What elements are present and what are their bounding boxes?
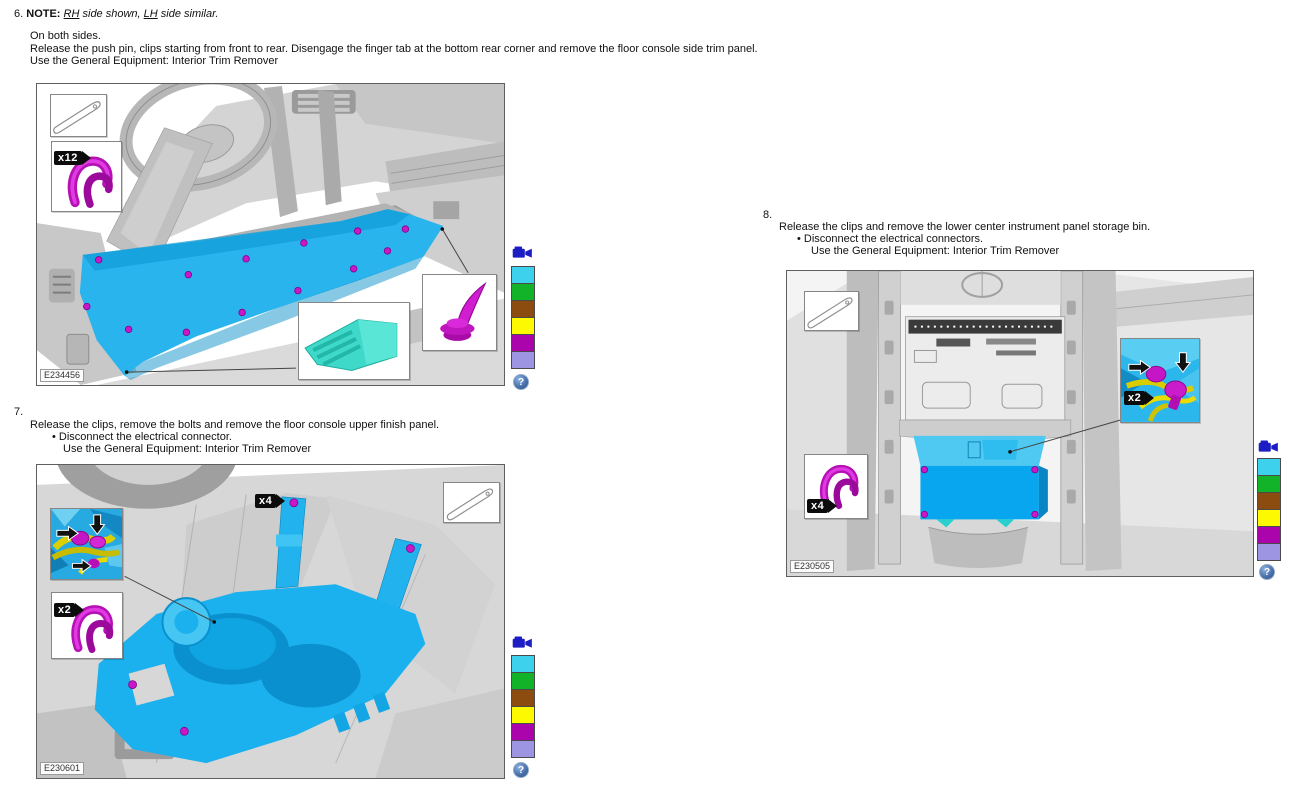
- help-icon[interactable]: ?: [513, 374, 529, 390]
- legend-color-swatch: [1257, 458, 1281, 476]
- color-legend: [511, 267, 535, 369]
- connector-count-callout: x2: [1124, 391, 1154, 405]
- video-camera-icon[interactable]: [512, 636, 533, 650]
- clip-inset: x4: [804, 454, 868, 519]
- trim-remover-tool-icon: [51, 95, 106, 136]
- step-6-line-1: On both sides.: [30, 30, 101, 43]
- trim-remover-tool-inset: [50, 94, 107, 137]
- callout-arrow-icon: [1145, 391, 1154, 405]
- step-8-equipment: Use the General Equipment: Interior Trim…: [811, 245, 1059, 258]
- legend-color-swatch: [511, 689, 535, 707]
- legend-color-swatch: [1257, 543, 1281, 561]
- legend-color-swatch: [511, 723, 535, 741]
- figure-1-legend-rail: ?: [511, 246, 539, 396]
- finger-tab-icon: [299, 303, 409, 379]
- legend-color-swatch: [511, 672, 535, 690]
- step-7-number: 7.: [14, 406, 23, 419]
- bolt-count-callout: x4: [255, 494, 285, 508]
- clip-count-callout: x4: [807, 499, 837, 513]
- legend-color-swatch: [511, 266, 535, 284]
- legend-color-swatch: [1257, 509, 1281, 527]
- note-label: NOTE:: [26, 8, 60, 20]
- legend-color-swatch: [511, 706, 535, 724]
- figure-id-label: E230505: [790, 560, 834, 573]
- legend-color-swatch: [511, 300, 535, 318]
- legend-color-swatch: [1257, 492, 1281, 510]
- figure-3-legend-rail: ?: [1257, 440, 1285, 590]
- color-legend: [511, 656, 535, 758]
- help-icon[interactable]: ?: [513, 762, 529, 778]
- bullet-glyph: •: [52, 431, 56, 443]
- callout-arrow-icon: [828, 499, 837, 513]
- callout-arrow-icon: [276, 494, 285, 508]
- legend-color-swatch: [511, 317, 535, 335]
- step-7-equipment: Use the General Equipment: Interior Trim…: [63, 443, 311, 456]
- electrical-connector-icon: [51, 509, 122, 579]
- figure-id-label: E234456: [40, 369, 84, 382]
- electrical-connector-inset: [50, 508, 123, 580]
- electrical-connector-inset: x2: [1120, 338, 1200, 423]
- bullet-glyph: •: [797, 233, 801, 245]
- trim-remover-tool-icon: [805, 292, 858, 330]
- clip-inset: x2: [51, 592, 123, 659]
- video-camera-icon[interactable]: [1258, 440, 1279, 454]
- note-text: RH side shown, LH side similar.: [64, 8, 219, 20]
- push-pin-icon: [423, 275, 496, 350]
- figure-upper-finish-panel: x2 x4 E230601: [36, 464, 505, 779]
- legend-color-swatch: [511, 740, 535, 758]
- figure-side-trim-panel: x12 E234456: [36, 83, 505, 386]
- step-6-line-3: Use the General Equipment: Interior Trim…: [30, 55, 278, 68]
- push-pin-clip-inset: x12: [51, 141, 122, 212]
- legend-color-swatch: [511, 283, 535, 301]
- trim-remover-tool-icon: [444, 483, 499, 522]
- figure-id-label: E230601: [40, 762, 84, 775]
- figure-storage-bin: x2 x4 E230505: [786, 270, 1254, 577]
- step-6-number: 6.: [14, 8, 23, 20]
- legend-color-swatch: [511, 351, 535, 369]
- finger-tab-inset: [298, 302, 410, 380]
- trim-remover-tool-inset: [443, 482, 500, 523]
- step-6-note-line: 6. NOTE: RH side shown, LH side similar.: [14, 8, 218, 21]
- figure-2-legend-rail: ?: [511, 636, 539, 786]
- radio-module: [905, 317, 1064, 420]
- clip-count-callout: x2: [54, 603, 84, 617]
- help-icon[interactable]: ?: [1259, 564, 1275, 580]
- clip-count-callout: x12: [54, 151, 91, 165]
- color-legend: [1257, 459, 1281, 561]
- video-camera-icon[interactable]: [512, 246, 533, 260]
- callout-arrow-icon: [75, 603, 84, 617]
- step-8-number: 8.: [763, 209, 772, 222]
- push-pin-inset: [422, 274, 497, 351]
- trim-remover-tool-inset: [804, 291, 859, 331]
- legend-color-swatch: [511, 655, 535, 673]
- legend-color-swatch: [1257, 475, 1281, 493]
- legend-color-swatch: [1257, 526, 1281, 544]
- callout-arrow-icon: [82, 151, 91, 165]
- electrical-connector-icon: [1121, 339, 1199, 422]
- storage-bin-highlight: [913, 436, 1047, 527]
- legend-color-swatch: [511, 334, 535, 352]
